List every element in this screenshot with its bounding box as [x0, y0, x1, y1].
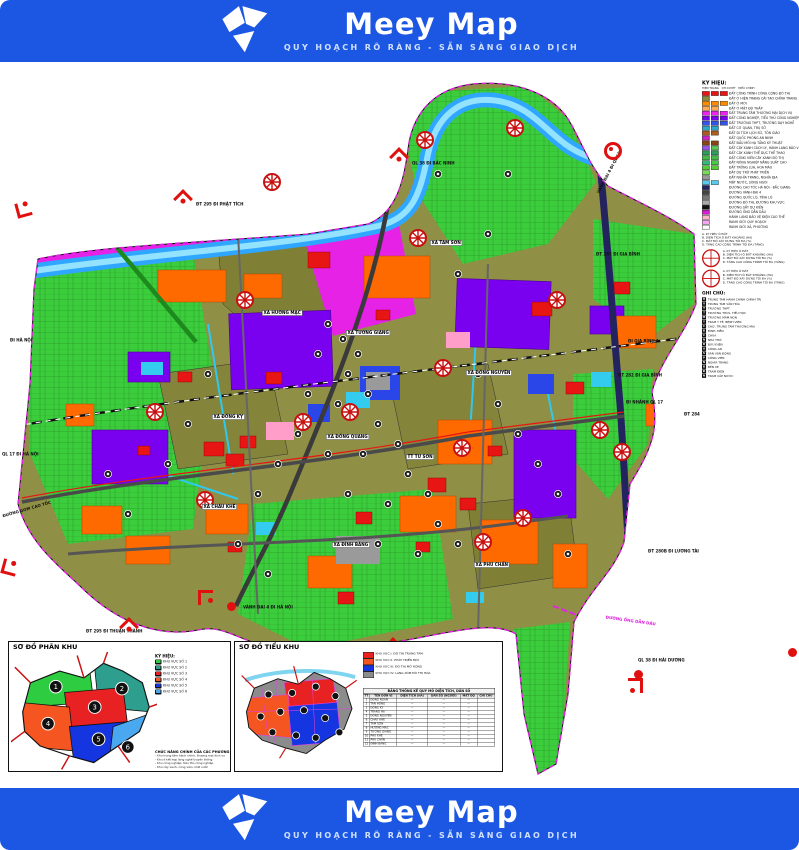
facility-node-icon: [494, 400, 501, 407]
legend-item-label: ĐƯỜNG CAO TỐC HÀ NỘI - BẮC GIANG: [729, 186, 790, 190]
svg-text:3: 3: [93, 704, 97, 712]
zone-label: KHU VỰC III: ĐÔ THỊ MỞ RỘNG: [376, 665, 423, 669]
interchange-node-icon: [507, 120, 523, 136]
banner-top: Meey Map QUY HOẠCH RÕ RÀNG - SẴN SÀNG GI…: [0, 0, 799, 62]
interchange-node-icon: [417, 132, 433, 148]
zone-label: KHU VỰC SỐ 6: [163, 690, 187, 694]
facility-node-icon: [484, 230, 491, 237]
legend-item-label: ĐẤT Ở MẬT ĐỘ THẤP: [729, 106, 762, 110]
facility-icon: N: [702, 338, 706, 342]
zone-swatch: [363, 672, 374, 679]
facility-node-icon: [339, 335, 346, 342]
svg-text:6: 6: [126, 743, 130, 751]
meeymap-logo-icon: [220, 5, 272, 57]
legend-item: ĐẤT CÔNG TRÌNH CÔNG CỘNG ĐÔ THỊ: [702, 91, 797, 96]
facility-node-icon: [314, 350, 321, 357]
notes-item-label: BẾN XE: [708, 365, 719, 369]
facility-node-icon: [324, 450, 331, 457]
facility-node-icon: [424, 490, 431, 497]
legend-item-label: ĐẤT CÔNG TRÌNH CÔNG CỘNG ĐÔ THỊ: [729, 91, 790, 95]
facility-node-icon: [359, 450, 366, 457]
legend-swatch: [711, 126, 719, 131]
legend-swatch: [720, 116, 728, 121]
legend-title: KÝ HIỆU:: [702, 80, 797, 86]
facility-node-icon: [274, 460, 281, 467]
legend-swatch: [702, 101, 710, 106]
legend-col-header: HIỆN TRẠNG: [702, 87, 719, 90]
facility-node-icon: [414, 550, 421, 557]
interchange-legend: A. KÝ HIỆU Ô ĐẤTB. DIỆN TÍCH Ô ĐẤT KHOẢN…: [702, 249, 797, 287]
zone-badge-icon: [155, 684, 162, 689]
phan-khu-notes: CHỨC NĂNG CHÍNH CỦA CÁC PHƯỜNG - Khu tru…: [155, 750, 230, 770]
facility-icon: Đ: [702, 329, 706, 333]
facility-icon: B: [702, 365, 706, 369]
facility-icon: Y: [702, 320, 706, 324]
legend-swatch: [720, 121, 728, 126]
facility-node-icon: [104, 470, 111, 477]
legend-swatch: [711, 180, 719, 185]
brand-name: Meey Map: [344, 10, 518, 39]
notes-item-label: BƯU ĐIỆN: [708, 343, 723, 347]
facility-icon: M: [702, 315, 706, 319]
facility-node-icon: [384, 500, 391, 507]
legend-panel: KÝ HIỆU: HIỆN TRẠNG QH DUYỆT ĐIỀU CHỈNH …: [702, 80, 797, 378]
note-line: - Khu cây xanh, công viên, mặt nước: [155, 766, 230, 770]
legend-col-header: ĐIỀU CHỈNH: [738, 87, 754, 90]
legend-swatch: [711, 111, 719, 116]
legend-swatch: [702, 195, 710, 200]
legend-swatch: [711, 160, 719, 165]
facility-node-icon: [434, 170, 441, 177]
notes-item-label: CÔNG AN: [708, 347, 722, 351]
zone-label: KHU VỰC SỐ 4: [163, 678, 187, 682]
facility-node-icon: [324, 320, 331, 327]
interchange-node-icon: [197, 492, 213, 508]
legend-item-label: ĐẤT TRƯỜNG THPT, TRƯỜNG DẠY NGHỀ: [729, 121, 794, 125]
zone-badge-icon: [155, 678, 162, 683]
interchange-node-icon: [549, 292, 565, 308]
legend-swatch: [702, 141, 710, 146]
legend-item-label: ĐẤT TRUNG TÂM THƯƠNG MẠI DỊCH VỤ: [729, 111, 792, 115]
facility-node-icon: [124, 510, 131, 517]
legend-column-headers: HIỆN TRẠNG QH DUYỆT ĐIỀU CHỈNH: [702, 87, 797, 90]
legend-swatch: [711, 101, 719, 106]
legend-intro-notes: A. KÝ HIỆU Ô ĐẤT B. DIỆN TÍCH Ô ĐẤT KHOẢ…: [702, 232, 797, 247]
facility-node-icon: [514, 430, 521, 437]
legend-swatch: [720, 111, 728, 116]
facility-icon: N: [702, 374, 706, 378]
interchange-node-icon: [435, 360, 451, 376]
interchange-node-icon: [454, 440, 470, 456]
zone-badge-icon: [155, 690, 162, 695]
legend-item-label: ĐƯỜNG ỐNG DẪN DẦU: [729, 210, 766, 214]
legend-swatch: [702, 185, 710, 190]
facility-icon: N: [702, 360, 706, 364]
legend-swatch: [702, 136, 710, 141]
legend-item-label: RANH GIỚI QUY HOẠCH: [729, 220, 766, 224]
legend-item-label: ĐẤT DỰ TRỮ PHÁT TRIỂN: [729, 171, 769, 175]
facility-node-icon: [454, 540, 461, 547]
inset-tieu-khu[interactable]: SƠ ĐỒ TIỂU KHU: [234, 641, 503, 772]
legend-swatch: [702, 190, 710, 195]
facility-node-icon: [504, 170, 511, 177]
facility-icon: B: [702, 342, 706, 346]
facility-node-icon: [404, 470, 411, 477]
legend-swatch: [711, 155, 719, 160]
notes-item-label: TRẠM ĐIỆN: [708, 370, 724, 374]
interchange-node-icon: [592, 422, 608, 438]
road-marker-icon[interactable]: [788, 648, 797, 657]
legend-swatch: [702, 215, 710, 220]
facility-node-icon: [374, 540, 381, 547]
legend-item-label: ĐẤT NÔNG NGHIỆP NĂNG SUẤT CAO: [729, 161, 787, 165]
phan-khu-legend-item: KHU VỰC SỐ 3: [155, 672, 230, 677]
legend-item-label: ĐẤT DI TÍCH LỊCH SỬ, TÔN GIÁO: [729, 131, 780, 135]
legend-item-label: ĐẤT CÂY XANH CÁCH LY, HÀNH LANG BẢO VỆ (…: [729, 146, 799, 150]
facility-icon: C: [702, 324, 706, 328]
legend-item: RANH GIỚI XÃ, PHƯỜNG: [702, 224, 797, 229]
phan-khu-legend-item: KHU VỰC SỐ 2: [155, 666, 230, 671]
interchange-node-icon: [147, 404, 163, 420]
zone-label: KHU VỰC SỐ 3: [163, 672, 187, 676]
facility-icon: P: [702, 356, 706, 360]
interchange-notes: A. KÝ HIỆU Ô ĐẤTB. DIỆN TÍCH Ô ĐẤT KHOẢN…: [723, 249, 785, 264]
banner-bottom: Meey Map QUY HOẠCH RÕ RÀNG - SẴN SÀNG GI…: [0, 788, 799, 850]
legend-item-label: ĐƯỜNG ĐÔ THỊ, ĐƯỜNG KHU VỰC: [729, 200, 785, 204]
brand-tagline: QUY HOẠCH RÕ RÀNG - SẴN SÀNG GIAO DỊCH: [284, 831, 579, 840]
brand-text: Meey Map QUY HOẠCH RÕ RÀNG - SẴN SÀNG GI…: [284, 10, 579, 52]
legend-swatch: [711, 131, 719, 136]
interchange-wheel-icon: [702, 269, 720, 287]
facility-node-icon: [354, 350, 361, 357]
notes-item-label: CÔNG VIÊN: [708, 356, 725, 360]
legend-swatch: [702, 200, 710, 205]
legend-swatch: [702, 121, 710, 126]
legend-swatch: [702, 180, 710, 185]
table-row: 12ĐÌNH BẢNG —— —: [363, 742, 495, 746]
facility-node-icon: [344, 370, 351, 377]
svg-text:2: 2: [120, 685, 124, 693]
notes-title: GHI CHÚ:: [702, 291, 797, 296]
legend-swatch: [711, 145, 719, 150]
zone-label: KHU VỰC SỐ 5: [163, 684, 187, 688]
facility-node-icon: [344, 490, 351, 497]
zone-badge-icon: [155, 672, 162, 677]
legend-swatch: [702, 220, 710, 225]
facility-icon: S: [702, 351, 706, 355]
legend-swatch: [702, 165, 710, 170]
interchange-node-icon: [614, 444, 630, 460]
tieu-khu-legend-item: KHU VỰC IV: LÀNG XÓM ĐÔ THỊ HÓA: [363, 672, 431, 679]
zone-label: KHU VỰC IV: LÀNG XÓM ĐÔ THỊ HÓA: [376, 672, 431, 676]
legend-swatch: [702, 116, 710, 121]
facility-node-icon: [394, 440, 401, 447]
notes-item-label: TRẠM CẤP NƯỚC: [708, 374, 733, 378]
phan-khu-map: 1 2 3 4 5 6: [11, 652, 157, 770]
facility-node-icon: [434, 520, 441, 527]
interchange-node-icon: [515, 510, 531, 526]
facility-node-icon: [164, 460, 171, 467]
legend-item-label: MẶT NƯỚC, SÔNG NGÒI: [729, 181, 767, 185]
facility-node-icon: [294, 430, 301, 437]
notes-item-label: TRUNG TÂM HÀNH CHÍNH CHÍNH TRỊ: [708, 298, 761, 302]
legend-swatch: [711, 121, 719, 126]
zone-label: KHU VỰC II: PHÁT TRIỂN MỚI: [376, 659, 420, 663]
facility-node-icon: [184, 420, 191, 427]
legend-item-label: ĐẤT ĐẦU MỐI HẠ TẦNG KỸ THUẬT: [729, 141, 783, 145]
interchange-node-icon: [410, 230, 426, 246]
inset-phan-khu[interactable]: SƠ ĐỒ PHÂN KHU: [8, 641, 231, 772]
notes-item: N TRẠM CẤP NƯỚC: [702, 374, 797, 379]
map-sheet: XÃ HƯƠNG MẠCXÃ TAM SƠNXÃ TƯƠNG GIANGXÃ Đ…: [0, 62, 799, 788]
facility-icon: Đ: [702, 369, 706, 373]
interchange-node-icon: [342, 404, 358, 420]
facility-node-icon: [264, 570, 271, 577]
notes-item-label: TRƯỜNG THPT: [708, 307, 730, 311]
legend-swatch: [702, 150, 710, 155]
legend-item-label: ĐƯỜNG VÀNH ĐAI 4: [729, 190, 761, 194]
facility-icon: C: [702, 333, 706, 337]
legend-swatch: [702, 210, 710, 215]
interchange-node-icon: [295, 414, 311, 430]
phan-khu-legend-item: KHU VỰC SỐ 5: [155, 684, 230, 689]
tieu-khu-legend: KHU VỰC I: ĐÔ THỊ TRUNG TÂM KHU VỰC II: …: [363, 652, 498, 678]
legend-swatch: [702, 91, 710, 96]
facility-node-icon: [254, 490, 261, 497]
facility-node-icon: [364, 390, 371, 397]
legend-swatch: [711, 116, 719, 121]
legend-swatch: [711, 91, 719, 96]
legend-swatch: [702, 155, 710, 160]
legend-swatch: [711, 106, 719, 111]
zone-label: KHU VỰC I: ĐÔ THỊ TRUNG TÂM: [376, 652, 423, 656]
notes-item-label: TRƯỜNG THCS, TIỂU HỌC: [708, 311, 746, 315]
notes-item-label: CHỢ, TRUNG TÂM THƯƠNG MẠI: [708, 325, 755, 329]
legend-swatch: [702, 225, 710, 230]
meeymap-logo-icon: [220, 793, 272, 845]
phan-khu-legend-item: KHU VỰC SỐ 1: [155, 660, 230, 665]
legend-swatch: [720, 91, 728, 96]
legend-item-label: ĐẤT CÔNG VIÊN CÂY XANH ĐÔ THỊ: [729, 156, 784, 160]
interchange-legend-item: A. KÝ HIỆU Ô ĐẤTB. DIỆN TÍCH Ô ĐẤT KHOẢN…: [702, 249, 797, 267]
facility-icon: A: [702, 347, 706, 351]
notes-item-label: CHÙA: [708, 334, 716, 338]
legend-item-label: ĐẤT CÔNG NGHIỆP, TIỂU THỦ CÔNG NGHIỆP: [729, 116, 799, 120]
legend-item-label: ĐẤT CÂY XANH THỂ DỤC THỂ THAO: [729, 151, 785, 155]
notes-item-label: TRƯỜNG MẦM NON: [708, 316, 737, 320]
zone-badge-icon: [155, 666, 162, 671]
facility-icon: H: [702, 297, 706, 301]
legend-swatch: [702, 106, 710, 111]
legend-swatch: [702, 131, 710, 136]
phan-khu-legend-title: KÝ HIỆU:: [155, 654, 230, 659]
legend-swatch: [711, 150, 719, 155]
legend-item-label: ĐƯỜNG SẮT DỰ KIẾN: [729, 205, 763, 209]
interchange-legend-item: A. KÝ HIỆU Ô ĐẤTB. DIỆN TÍCH Ô ĐẤT KHOẢN…: [702, 269, 797, 287]
tieu-khu-table: BẢNG THỐNG KÊ QUY MÔ DIỆN TÍCH, DÂN SỐ T…: [363, 688, 495, 747]
facility-node-icon: [204, 370, 211, 377]
legend-swatch: [702, 175, 710, 180]
phan-khu-legend: KÝ HIỆU: KHU VỰC SỐ 1 KHU VỰC SỐ 2: [155, 654, 230, 696]
interchange-node-icon: [264, 174, 280, 190]
notes-items: H TRUNG TÂM HÀNH CHÍNH CHÍNH TRỊ V TRUNG…: [702, 297, 797, 378]
legend-swatch: [702, 96, 710, 101]
interchange-notes: A. KÝ HIỆU Ô ĐẤTB. DIỆN TÍCH Ô ĐẤT KHOẢN…: [723, 269, 785, 284]
legend-item-label: ĐẤT NGHĨA TRANG, NGHĨA ĐỊA: [729, 176, 777, 180]
legend-item-label: ĐẤT Ở HIỆN TRẠNG CẢI TẠO CHỈNH TRANG: [729, 96, 797, 100]
notes-item-label: TRUNG TÂM VĂN HÓA: [708, 302, 740, 306]
phan-khu-notes-title: CHỨC NĂNG CHÍNH CỦA CÁC PHƯỜNG: [155, 750, 230, 754]
notes-item-label: NHÀ THỜ: [708, 338, 722, 342]
brand-tagline: QUY HOẠCH RÕ RÀNG - SẴN SÀNG GIAO DỊCH: [284, 43, 579, 52]
facility-node-icon: [564, 550, 571, 557]
legend-item-label: ĐẤT CƠ QUAN, TRỤ SỞ: [729, 126, 766, 130]
legend-swatch: [711, 165, 719, 170]
legend-item-label: ĐẤT TRỒNG LÚA, HOA MÀU: [729, 166, 772, 170]
svg-text:4: 4: [46, 720, 50, 728]
brand-name: Meey Map: [344, 798, 518, 827]
facility-node-icon: [304, 390, 311, 397]
facility-node-icon: [374, 420, 381, 427]
legend-swatch: [702, 126, 710, 131]
legend-item-label: RANH GIỚI XÃ, PHƯỜNG: [729, 225, 768, 229]
notes-item-label: TRẠM Y TẾ, BỆNH VIỆN: [708, 320, 742, 324]
interchange-node-icon: [237, 292, 253, 308]
svg-text:5: 5: [96, 736, 100, 744]
legend-item-label: ĐẤT QUỐC PHÒNG AN NINH: [729, 136, 773, 140]
facility-icon: T: [702, 311, 706, 315]
facility-node-icon: [554, 490, 561, 497]
phan-khu-legend-item: KHU VỰC SỐ 6: [155, 690, 230, 695]
facility-node-icon: [534, 460, 541, 467]
inset-tieu-khu-title: SƠ ĐỒ TIỂU KHU: [239, 644, 299, 651]
legend-item-label: ĐƯỜNG QUỐC LỘ, TỈNH LỘ: [729, 195, 772, 199]
phan-khu-legend-item: KHU VỰC SỐ 4: [155, 678, 230, 683]
facility-node-icon: [454, 270, 461, 277]
notes-item-label: SÂN VẬN ĐỘNG: [708, 352, 731, 356]
legend-item-label: ĐẤT Ở MỚI: [729, 101, 747, 105]
legend-swatch: [702, 205, 710, 210]
facility-node-icon: [474, 370, 481, 377]
interchange-wheel-icon: [702, 249, 720, 267]
facility-icon: T: [702, 306, 706, 310]
legend-swatch: [702, 145, 710, 150]
facility-node-icon: [234, 540, 241, 547]
legend-swatch: [702, 170, 710, 175]
notes-item-label: ĐÌNH, ĐỀN: [708, 329, 724, 333]
tieu-khu-map: [237, 652, 363, 770]
zone-badge-icon: [155, 660, 162, 665]
legend-swatch: [702, 111, 710, 116]
legend-item-label: HÀNH LANG BẢO VỆ ĐIỆN CAO THẾ: [729, 215, 785, 219]
legend-col-header: QH DUYỆT: [722, 87, 736, 90]
legend-swatch: [720, 101, 728, 106]
facility-node-icon: [334, 400, 341, 407]
page: Meey Map QUY HOẠCH RÕ RÀNG - SẴN SÀNG GI…: [0, 0, 799, 850]
legend-items: ĐẤT CÔNG TRÌNH CÔNG CỘNG ĐÔ THỊ ĐẤT Ở HI…: [702, 91, 797, 230]
legend-intro-line: D. TẦNG CAO CÔNG TRÌNH TỐI ĐA (TẦNG): [702, 243, 797, 247]
legend-swatch: [702, 160, 710, 165]
zone-label: KHU VỰC SỐ 1: [163, 660, 187, 664]
notes-item-label: NGHĨA TRANG: [708, 361, 729, 365]
interchange-node-icon: [475, 534, 491, 550]
zone-label: KHU VỰC SỐ 2: [163, 666, 187, 670]
svg-text:1: 1: [54, 683, 58, 691]
legend-swatch: [711, 141, 719, 146]
facility-icon: V: [702, 302, 706, 306]
brand-text: Meey Map QUY HOẠCH RÕ RÀNG - SẴN SÀNG GI…: [284, 798, 579, 840]
inset-phan-khu-title: SƠ ĐỒ PHÂN KHU: [13, 644, 77, 651]
